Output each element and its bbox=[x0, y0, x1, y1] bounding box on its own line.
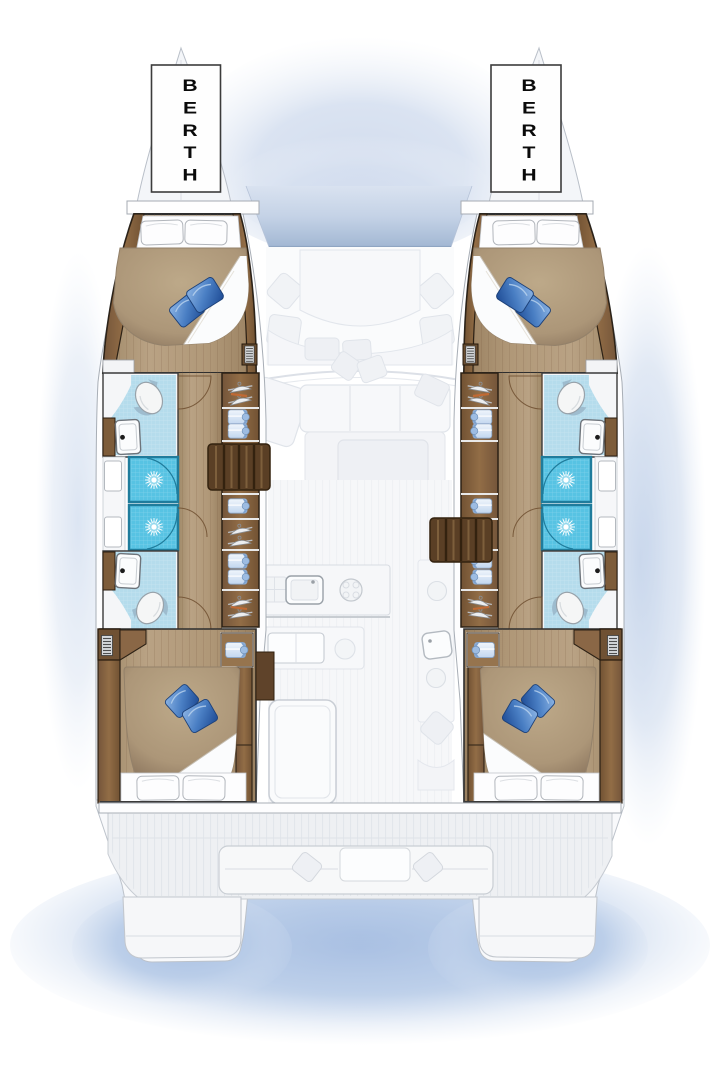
svg-text:BERTH: BERTH bbox=[182, 77, 198, 185]
svg-text:BERTH: BERTH bbox=[521, 77, 537, 185]
